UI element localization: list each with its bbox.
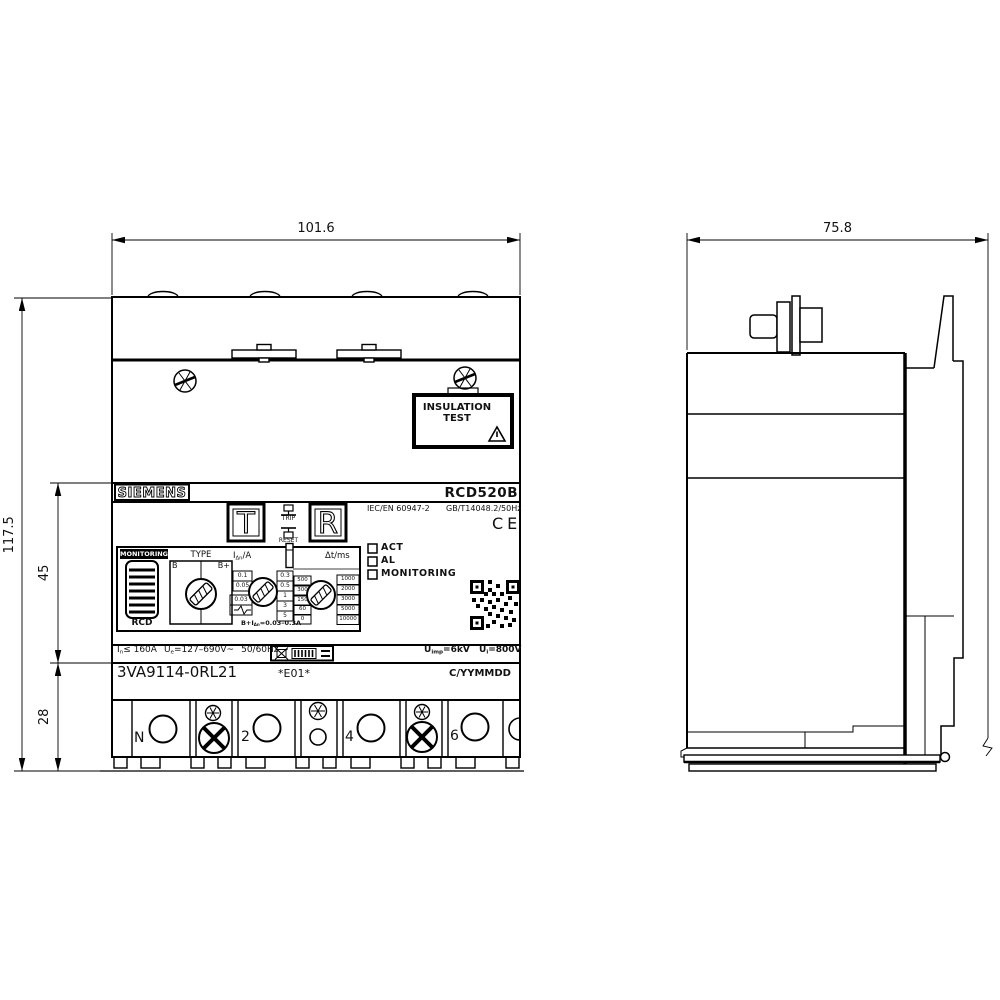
rating-voltage: Ue=127–690V~: [164, 645, 234, 655]
dt-value: 60: [294, 607, 311, 613]
led-label-monitoring: MONITORING: [381, 569, 456, 579]
qr-code-icon: [470, 580, 520, 630]
terminal-label-6: 6: [450, 729, 459, 744]
siemens-logo: SIEMENS: [118, 486, 187, 501]
ratings-line: In≤ 160AUe=127–690V~50/60Hz: [117, 646, 279, 656]
terminal-label-4: 4: [345, 730, 354, 745]
note-post: =0.03–0.3A: [260, 619, 301, 627]
dim-bottom-height: 28: [38, 697, 52, 737]
mounting-feet: [114, 757, 519, 768]
dt-value: 5000: [337, 607, 359, 613]
dim-front-width: 101.6: [112, 222, 520, 236]
idn-value: 1: [277, 593, 293, 599]
rating-freq: 50/60Hz: [241, 645, 278, 655]
type-label: TYPE: [184, 551, 218, 560]
uimp-rest: =6kV: [443, 645, 470, 655]
terminal-hole: [462, 714, 489, 741]
terminal-section: [100, 700, 524, 771]
standard-gb: GB/T14048.2/50Hz: [446, 505, 521, 513]
led-label-act: ACT: [381, 543, 403, 553]
terminal-screw-icon: [199, 706, 229, 754]
idn-range-note: B+IΔn=0.03–0.3A: [225, 620, 317, 627]
dt-value: 500: [294, 578, 311, 584]
technical-drawing-page: SIEMENS T R: [0, 0, 1000, 1000]
idn-axis-label: IΔn/A: [233, 552, 251, 562]
trip-plunger-icon: [281, 505, 296, 515]
date-code: C/YYMMDD: [449, 669, 511, 680]
insulation-line2: TEST: [419, 414, 495, 425]
side-bottom-details: [681, 726, 905, 757]
terminal-hole: [254, 715, 281, 742]
cover-screw-icon: [174, 370, 196, 392]
type-b-option: B: [172, 562, 178, 570]
type-bplus-option: B+: [214, 562, 230, 570]
dt-value: 300: [294, 588, 311, 594]
test-button-letter: T: [236, 506, 255, 540]
side-terminal-screw: [750, 296, 822, 355]
terminal-screw-icon: [407, 705, 437, 753]
voltage-rest: =127–690V~: [174, 645, 234, 655]
standard-iec: IEC/EN 60947-2: [367, 505, 430, 513]
led-label-al: AL: [381, 556, 395, 566]
panel-monitoring-label: MONITORING: [120, 549, 168, 559]
dc-symbol-icon: [321, 651, 330, 656]
current-rest: ≤ 160A: [123, 645, 157, 655]
terminal-label-2: 2: [241, 730, 250, 745]
version-label: *E01*: [278, 668, 310, 680]
dim-side-width: 75.8: [687, 222, 988, 236]
trip-label: TRIP: [276, 516, 301, 522]
reset-label: RESET: [274, 538, 303, 544]
uimp-rating: Uimp=6kV: [424, 646, 470, 656]
reset-button-letter: R: [318, 506, 338, 540]
side-view: [681, 296, 963, 771]
marking-symbols-box: [271, 646, 333, 661]
uimp-sub: imp: [431, 650, 443, 656]
dt-value: 10000: [337, 617, 359, 623]
terminal-label-n: N: [134, 731, 144, 746]
instantaneous-symbol: [234, 606, 251, 614]
note-pre: B+I: [241, 619, 254, 627]
dt-value: 3000: [337, 597, 359, 603]
idn-value: 0.3: [277, 573, 293, 579]
monitoring-window: [126, 561, 158, 618]
dt-value: 1000: [337, 577, 359, 583]
idn-value: 0.5: [277, 583, 293, 589]
insulation-line1: INSULATION: [419, 403, 495, 414]
terminal-screw-icon: [310, 703, 327, 746]
side-rear-attachment: [905, 296, 963, 762]
idn-value: 0.03: [230, 597, 252, 603]
cover-screw-icon: [454, 367, 476, 389]
ui-rest: =800V: [488, 645, 521, 655]
dt-value: 150: [294, 598, 311, 604]
dt-axis-label: Δt/ms: [325, 552, 350, 561]
led-checkboxes: [368, 544, 377, 579]
idn-value: 0.05: [233, 583, 252, 589]
sealing-pin: [286, 544, 293, 568]
idn-value: 0.1: [233, 573, 252, 579]
type-selector-dial: [170, 561, 232, 624]
insulation-test-label: INSULATION TEST: [419, 403, 495, 424]
ui-rating: Ui=800V: [479, 646, 522, 656]
order-number: 3VA9114-0RL21: [117, 665, 237, 681]
voltage-base: U: [164, 645, 171, 655]
model-label: RCD520B: [430, 486, 518, 500]
side-base-plates: [684, 755, 940, 771]
idn-value: 3: [277, 603, 293, 609]
terminal-hole: [358, 715, 385, 742]
dim-total-height: 117.5: [3, 507, 17, 563]
dim-mid-height: 45: [38, 553, 52, 593]
dt-value: 2000: [337, 587, 359, 593]
barcode-icon: [292, 649, 316, 659]
terminal-hole: [150, 716, 177, 743]
rating-current: In≤ 160A: [117, 645, 157, 655]
ce-mark: CE: [492, 516, 521, 533]
idn-unit: /A: [242, 551, 251, 561]
front-view: SIEMENS T R: [100, 292, 524, 772]
rcd-label: RCD: [126, 619, 158, 628]
